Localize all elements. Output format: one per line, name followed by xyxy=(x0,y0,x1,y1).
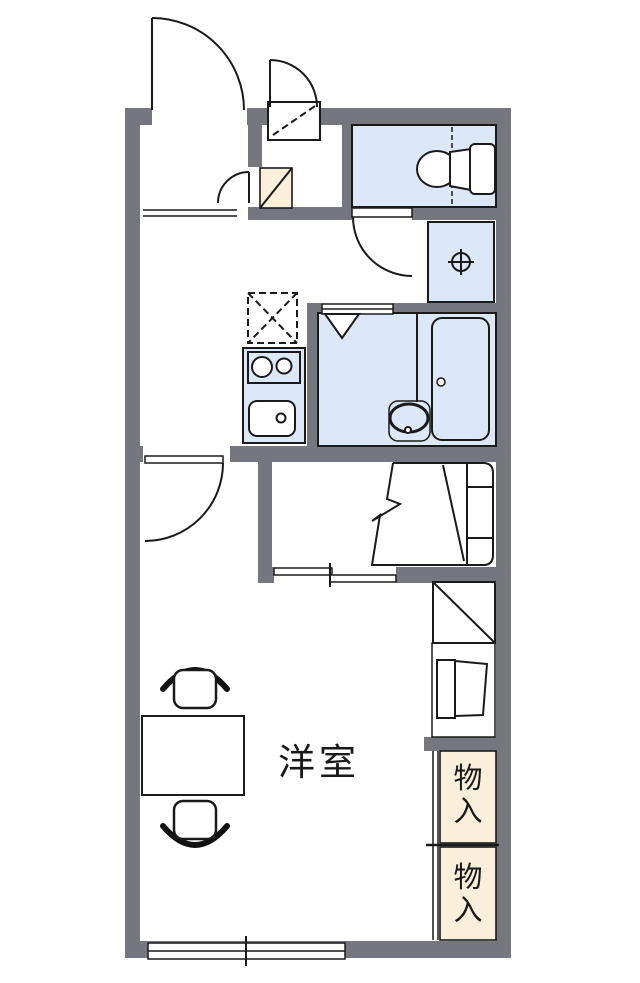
sliding-door-track-a xyxy=(274,568,332,575)
washbasin-drain xyxy=(405,427,411,433)
storage-lower-label: 物入 xyxy=(450,861,486,927)
chair-bottom-seat xyxy=(174,801,216,839)
chair-top-seat xyxy=(174,670,216,708)
toilet-tank xyxy=(470,144,495,194)
wall-top-mid xyxy=(247,108,268,125)
wall-mid-right xyxy=(412,207,496,220)
wall-genkan-stub xyxy=(248,125,262,167)
table xyxy=(142,716,244,795)
wall-bednook-left xyxy=(258,462,272,583)
toilet-seat xyxy=(450,149,471,190)
storage-upper-label: 物入 xyxy=(450,762,486,828)
entrance-door-swing xyxy=(152,18,244,110)
side-furniture xyxy=(432,582,495,737)
room-door-swing xyxy=(145,463,223,541)
stove-burner-left xyxy=(252,357,272,377)
shoe-cabinet-door-swing xyxy=(218,172,249,203)
delivery-locker-door-swing xyxy=(270,60,317,107)
wall-rooms-divider-a xyxy=(125,446,143,462)
entrance xyxy=(143,18,320,216)
wall-bednook-bottom-b xyxy=(396,567,496,583)
wall-right xyxy=(496,108,511,958)
stove-burner-right xyxy=(277,359,292,374)
wall-bednook-bottom-a xyxy=(258,567,274,583)
wall-left xyxy=(125,108,140,958)
wall-mid-left xyxy=(248,207,352,220)
tv-screen xyxy=(437,660,455,718)
floor-plan: 洋室 物入 物入 xyxy=(0,0,640,983)
shelf-diagonal xyxy=(433,582,495,643)
folding-bed xyxy=(372,463,493,565)
folding-bed-diagonal xyxy=(443,465,464,561)
kitchen-sink xyxy=(249,401,295,436)
wall-rooms-divider-b xyxy=(230,446,511,462)
floor-plan-drawing xyxy=(0,0,640,983)
toilet-door-leaf xyxy=(352,208,412,217)
wall-top-right xyxy=(320,108,511,125)
sink-drain xyxy=(277,414,286,423)
tv-body xyxy=(455,661,487,716)
wall-bath-left xyxy=(307,303,318,446)
sliding-door-track-b xyxy=(330,575,396,582)
western-room-label: 洋室 xyxy=(278,732,360,786)
toilet-door-swing xyxy=(353,217,412,276)
western-room-furniture xyxy=(142,670,244,845)
room-door xyxy=(145,456,223,541)
bathtub-drain xyxy=(437,378,445,386)
wall-storage-top xyxy=(424,737,496,751)
sliding-door xyxy=(274,563,396,587)
room-door-leaf xyxy=(145,456,223,463)
folding-bed-outline xyxy=(372,463,493,565)
sliding-window xyxy=(148,936,345,966)
